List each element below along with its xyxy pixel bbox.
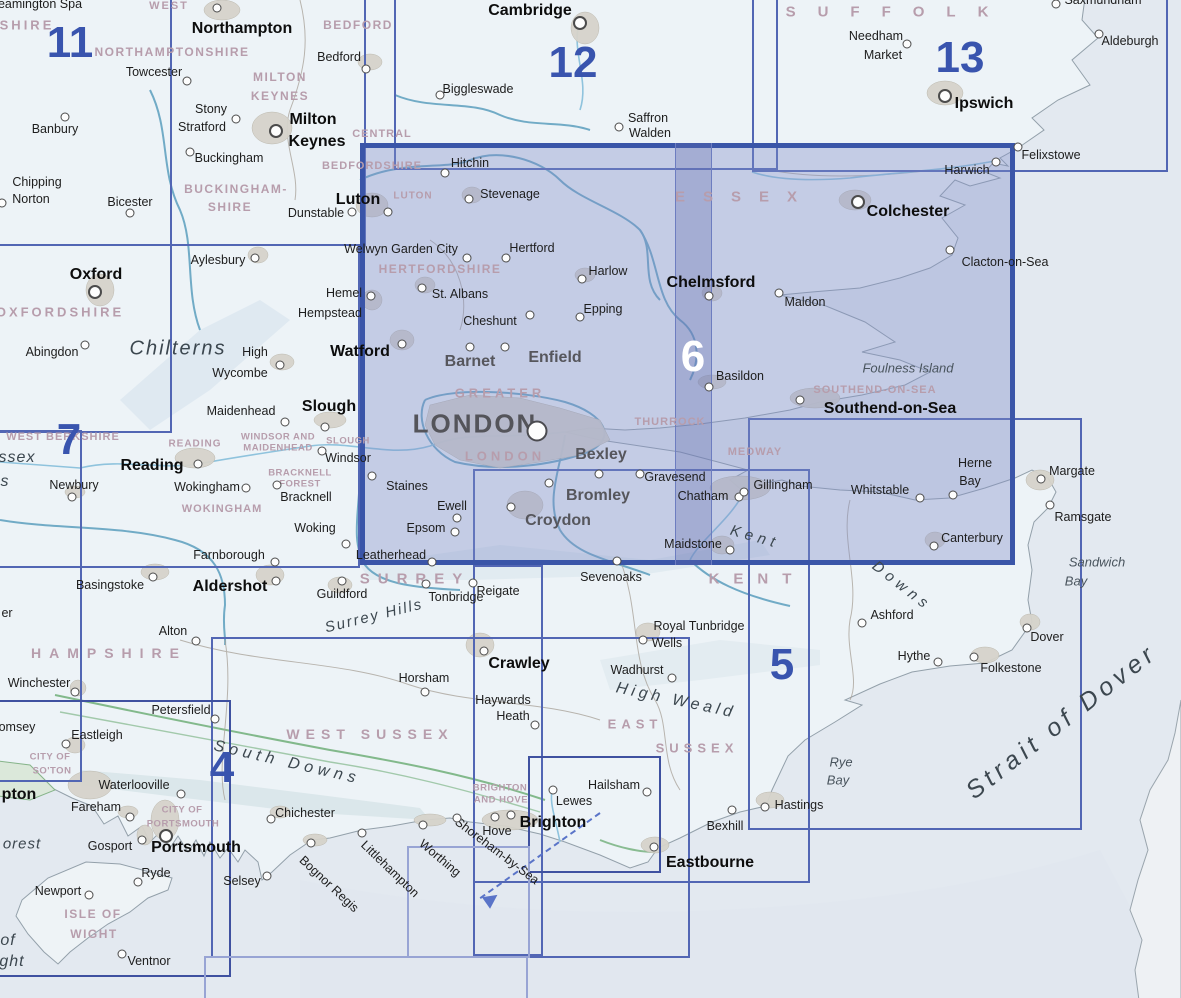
- city-label: Ipswich: [955, 95, 1014, 113]
- city-label: Gillingham: [753, 478, 812, 492]
- city-label: Biggleswade: [443, 82, 514, 96]
- city-dot: [705, 383, 714, 392]
- city-dot: [68, 493, 77, 502]
- city-label: Alton: [159, 624, 188, 638]
- city-label: Hitchin: [451, 156, 489, 170]
- city-label: Tonbridge: [429, 590, 484, 604]
- city-label: St. Albans: [432, 287, 488, 301]
- city-label: er: [1, 606, 12, 620]
- city-dot: [531, 721, 540, 730]
- sheet-number-7: 7: [57, 415, 81, 465]
- county-label: MEDWAY: [728, 446, 783, 458]
- city-dot: [934, 658, 943, 667]
- city-label: Herne: [958, 456, 992, 470]
- city-dot: [126, 813, 135, 822]
- city-label: Farnborough: [193, 548, 265, 562]
- county-label: LUTON: [393, 191, 432, 202]
- city-label: Keynes: [289, 133, 346, 151]
- city-label: Bay: [959, 474, 981, 488]
- city-label: eamington Spa: [0, 0, 82, 11]
- city-dot: [384, 208, 393, 217]
- city-dot: [251, 254, 260, 263]
- city-dot: [61, 113, 70, 122]
- city-label: Wadhurst: [610, 663, 663, 677]
- county-label: LONDON: [465, 449, 545, 464]
- county-label: CENTRAL: [352, 128, 412, 140]
- county-label: ISLE OF: [64, 907, 121, 921]
- city-dot: [418, 284, 427, 293]
- county-label: KENT: [709, 571, 806, 588]
- city-dot: [211, 715, 220, 724]
- city-label: Ventnor: [127, 954, 170, 968]
- county-label: WOKINGHAM: [182, 503, 263, 515]
- city-dot: [307, 839, 316, 848]
- city-dot: [338, 577, 347, 586]
- county-label: HAMPSHIRE: [31, 645, 187, 661]
- city-dot: [527, 421, 548, 442]
- city-dot: [1023, 624, 1032, 633]
- city-label: Eastleigh: [71, 728, 122, 742]
- city-label: Needham: [849, 29, 903, 43]
- city-label: Bexley: [575, 446, 627, 464]
- county-label: GREATER: [455, 386, 546, 401]
- city-label: Petersfield: [151, 703, 210, 717]
- city-label: Sevenoaks: [580, 570, 642, 584]
- county-label: OXFORDSHIRE: [0, 305, 124, 320]
- city-dot: [469, 579, 478, 588]
- area-label: Chilterns: [130, 338, 227, 361]
- city-label: Slough: [302, 398, 356, 416]
- city-dot: [545, 479, 554, 488]
- city-dot: [930, 542, 939, 551]
- city-label: Harwich: [944, 163, 989, 177]
- city-label: Horsham: [399, 671, 450, 685]
- city-dot: [946, 246, 955, 255]
- city-label: LONDON: [413, 409, 538, 440]
- city-label: Maidstone: [664, 537, 722, 551]
- area-label: orest: [3, 836, 41, 853]
- city-label: Selsey: [223, 874, 261, 888]
- city-label: Bicester: [107, 195, 152, 209]
- city-label: Hailsham: [588, 778, 640, 792]
- city-dot: [491, 813, 500, 822]
- county-label: SUFFOLK: [786, 4, 1011, 21]
- city-dot: [851, 195, 865, 209]
- city-dot: [650, 843, 659, 852]
- city-dot: [1046, 501, 1055, 510]
- city-label: Bromley: [566, 487, 630, 505]
- city-label: Woking: [294, 521, 335, 535]
- city-label: Wycombe: [212, 366, 267, 380]
- city-label: Hempstead: [298, 306, 362, 320]
- county-label: BRACKNELL: [268, 468, 332, 479]
- city-label: Dover: [1030, 630, 1063, 644]
- city-label: Ewell: [437, 499, 467, 513]
- city-dot: [177, 790, 186, 799]
- county-label: BEDFORDSHIRE: [322, 160, 422, 172]
- sheet-number-13: 13: [936, 33, 985, 83]
- city-dot: [796, 396, 805, 405]
- city-label: Bexhill: [707, 819, 744, 833]
- county-label: BEDFORD: [323, 18, 393, 32]
- sea-label: Foulness Island: [862, 361, 953, 376]
- county-label: HERTFORDSHIRE: [379, 262, 502, 276]
- city-label: Crawley: [488, 655, 549, 673]
- county-label: FOREST: [279, 479, 321, 490]
- city-dot: [318, 447, 327, 456]
- city-label: Welwyn Garden City: [344, 242, 458, 256]
- city-label: Lewes: [556, 794, 592, 808]
- city-label: Maidenhead: [207, 404, 276, 418]
- city-dot: [85, 891, 94, 900]
- city-dot: [578, 275, 587, 284]
- city-dot: [466, 343, 475, 352]
- area-label: s: [1, 473, 10, 491]
- city-dot: [81, 341, 90, 350]
- county-label: CITY OF: [30, 752, 71, 763]
- city-label: Chichester: [275, 806, 335, 820]
- city-label: Guildford: [317, 587, 368, 601]
- city-dot: [272, 577, 281, 586]
- area-label: of: [0, 932, 15, 950]
- city-label: Bedford: [317, 50, 361, 64]
- city-dot: [502, 254, 511, 263]
- city-dot: [639, 636, 648, 645]
- city-dot: [1095, 30, 1104, 39]
- city-dot: [668, 674, 677, 683]
- county-label: SUSSEX: [656, 741, 739, 756]
- city-dot: [480, 647, 489, 656]
- city-label: Epping: [584, 302, 623, 316]
- city-label: Royal Tunbridge: [653, 619, 744, 633]
- city-dot: [549, 786, 558, 795]
- city-dot: [118, 950, 127, 959]
- county-label: PORTSMOUTH: [147, 819, 220, 830]
- city-label: Hastings: [775, 798, 824, 812]
- city-label: Aldeburgh: [1102, 34, 1159, 48]
- city-label: Hertford: [509, 241, 554, 255]
- city-label: Wokingham: [174, 480, 240, 494]
- city-label: Colchester: [867, 203, 950, 221]
- city-dot: [134, 878, 143, 887]
- county-label: READING: [168, 439, 221, 450]
- city-label: Brighton: [520, 814, 587, 832]
- city-dot: [192, 637, 201, 646]
- city-label: Ryde: [141, 866, 170, 880]
- city-dot: [422, 580, 431, 589]
- city-label: Folkestone: [980, 661, 1041, 675]
- city-label: Towcester: [126, 65, 182, 79]
- city-dot: [465, 195, 474, 204]
- city-label: High: [242, 345, 268, 359]
- city-label: Whitstable: [851, 483, 909, 497]
- city-dot: [573, 16, 587, 30]
- city-dot: [1052, 0, 1061, 9]
- city-dot: [269, 124, 283, 138]
- city-label: Ashford: [870, 608, 913, 622]
- city-dot: [441, 169, 450, 178]
- city-dot: [916, 494, 925, 503]
- city-dot: [501, 343, 510, 352]
- city-label: Abingdon: [26, 345, 79, 359]
- city-dot: [1037, 475, 1046, 484]
- city-label: Winchester: [8, 676, 71, 690]
- county-label: WIGHT: [70, 927, 118, 941]
- city-dot: [636, 470, 645, 479]
- county-label: ESSEX: [675, 189, 815, 206]
- county-label: SURREY: [360, 571, 471, 588]
- city-dot: [428, 558, 437, 567]
- county-label: AND HOVE: [474, 795, 528, 806]
- city-label: Chelmsford: [667, 274, 756, 292]
- city-dot: [463, 254, 472, 263]
- city-dot: [903, 40, 912, 49]
- city-label: Enfield: [528, 349, 581, 367]
- county-label: MAIDENHEAD: [243, 443, 312, 454]
- county-label: SLOUGH: [326, 436, 370, 447]
- city-dot: [271, 558, 280, 567]
- county-label: BRIGHTON: [473, 783, 528, 794]
- sheet-number-4: 4: [210, 743, 234, 793]
- city-label: Margate: [1049, 464, 1095, 478]
- city-label: Stony: [195, 102, 227, 116]
- city-label: Chatham: [678, 489, 729, 503]
- city-dot: [183, 77, 192, 86]
- city-dot: [615, 123, 624, 132]
- city-dot: [267, 815, 276, 824]
- city-label: Wells: [652, 636, 682, 650]
- sea-label: Rye: [829, 755, 852, 770]
- city-label: Newbury: [49, 478, 98, 492]
- city-label: Stevenage: [480, 187, 540, 201]
- city-dot: [761, 803, 770, 812]
- city-dot: [1014, 143, 1023, 152]
- city-dot: [273, 481, 282, 490]
- city-label: Basildon: [716, 369, 764, 383]
- county-label: WEST SUSSEX: [286, 726, 453, 742]
- city-dot: [643, 788, 652, 797]
- sheet-number-5: 5: [770, 640, 794, 690]
- sea-label: Sandwich: [1069, 555, 1125, 570]
- city-label: Fareham: [71, 800, 121, 814]
- city-dot: [321, 423, 330, 432]
- city-label: Buckingham: [195, 151, 264, 165]
- city-dot: [88, 285, 102, 299]
- city-label: Milton: [289, 111, 336, 129]
- city-dot: [276, 361, 285, 370]
- county-label: WINDSOR AND: [241, 432, 315, 443]
- city-label: Cambridge: [488, 2, 572, 20]
- city-dot: [726, 546, 735, 555]
- city-dot: [858, 619, 867, 628]
- city-label: omsey: [0, 720, 35, 734]
- city-dot: [507, 811, 516, 820]
- city-label: Banbury: [32, 122, 79, 136]
- city-dot: [367, 292, 376, 301]
- city-label: Stratford: [178, 120, 226, 134]
- city-dot: [451, 528, 460, 537]
- city-dot: [342, 540, 351, 549]
- city-label: Reading: [120, 457, 183, 475]
- city-dot: [595, 470, 604, 479]
- city-label: pton: [2, 786, 37, 804]
- city-label: Newport: [35, 884, 82, 898]
- city-label: Eastbourne: [666, 854, 754, 872]
- city-label: Haywards: [475, 693, 531, 707]
- city-dot: [419, 821, 428, 830]
- city-label: Market: [864, 48, 902, 62]
- city-dot: [992, 158, 1001, 167]
- city-label: Leatherhead: [356, 548, 426, 562]
- city-label: Cheshunt: [463, 314, 517, 328]
- city-label: Northampton: [192, 20, 292, 38]
- city-dot: [436, 91, 445, 100]
- county-label: SOUTHEND-ON-SEA: [813, 384, 936, 396]
- city-dot: [970, 653, 979, 662]
- county-label: WEST: [149, 0, 189, 12]
- county-label: MILTON: [253, 70, 307, 84]
- city-label: Waterlooville: [98, 778, 169, 792]
- sheet-number-12: 12: [549, 38, 598, 88]
- city-label: Windsor: [325, 451, 371, 465]
- city-dot: [740, 488, 749, 497]
- city-label: Barnet: [445, 353, 496, 371]
- sea-label: Bay: [827, 773, 849, 788]
- city-label: Hove: [482, 824, 511, 838]
- city-label: Heath: [496, 709, 529, 723]
- city-label: Norton: [12, 192, 50, 206]
- city-label: Maldon: [785, 295, 826, 309]
- city-dot: [507, 503, 516, 512]
- city-label: Aylesbury: [191, 253, 246, 267]
- city-label: Ramsgate: [1055, 510, 1112, 524]
- city-label: Saffron: [628, 111, 668, 125]
- county-label: SHIRE: [208, 200, 252, 214]
- city-label: Aldershot: [193, 578, 268, 596]
- area-label: ght: [0, 953, 25, 971]
- city-dot: [194, 460, 203, 469]
- county-label: CITY OF: [162, 805, 203, 816]
- city-label: Gosport: [88, 839, 132, 853]
- sheet-box-channel[interactable]: [204, 956, 528, 998]
- map-canvas: SHIREWESTNORTHAMPTONSHIREMILTONKEYNESBED…: [0, 0, 1181, 998]
- city-dot: [775, 289, 784, 298]
- sea-label: Bay: [1065, 574, 1087, 589]
- city-label: Oxford: [70, 266, 122, 284]
- sheet-number-11: 11: [47, 18, 94, 68]
- city-label: Hemel: [326, 286, 362, 300]
- city-dot: [138, 836, 147, 845]
- county-label: EAST: [608, 717, 663, 732]
- city-dot: [159, 829, 173, 843]
- city-dot: [421, 688, 430, 697]
- city-label: Watford: [330, 343, 390, 361]
- city-dot: [71, 688, 80, 697]
- city-label: Epsom: [407, 521, 446, 535]
- city-label: Chipping: [12, 175, 61, 189]
- city-label: Saxmundham: [1064, 0, 1141, 7]
- city-label: Croydon: [525, 512, 591, 530]
- county-label: THURROCK: [635, 416, 706, 428]
- city-dot: [362, 65, 371, 74]
- city-dot: [453, 514, 462, 523]
- county-label: NORTHAMPTONSHIRE: [94, 45, 249, 59]
- area-label: ssex: [0, 449, 35, 467]
- city-dot: [398, 340, 407, 349]
- city-dot: [949, 491, 958, 500]
- city-dot: [613, 557, 622, 566]
- county-label: BUCKINGHAM-: [184, 182, 288, 196]
- city-label: Luton: [336, 191, 380, 209]
- city-label: Bracknell: [280, 490, 331, 504]
- city-dot: [186, 148, 195, 157]
- city-dot: [213, 4, 222, 13]
- city-label: Walden: [629, 126, 671, 140]
- city-label: Southend-on-Sea: [824, 400, 956, 418]
- city-dot: [938, 89, 952, 103]
- city-label: Hythe: [898, 649, 931, 663]
- city-label: Gravesend: [644, 470, 705, 484]
- city-dot: [576, 313, 585, 322]
- city-dot: [126, 209, 135, 218]
- city-dot: [149, 573, 158, 582]
- city-dot: [281, 418, 290, 427]
- city-dot: [728, 806, 737, 815]
- city-dot: [62, 740, 71, 749]
- city-label: Felixstowe: [1021, 148, 1080, 162]
- city-dot: [526, 311, 535, 320]
- county-label: KEYNES: [251, 89, 309, 103]
- city-label: Basingstoke: [76, 578, 144, 592]
- city-dot: [705, 292, 714, 301]
- county-label: SO'TON: [33, 766, 72, 777]
- city-dot: [263, 872, 272, 881]
- city-dot: [242, 484, 251, 493]
- city-label: Clacton-on-Sea: [962, 255, 1049, 269]
- city-dot: [368, 472, 377, 481]
- sheet-number-6: 6: [681, 332, 705, 382]
- city-dot: [453, 814, 462, 823]
- city-dot: [358, 829, 367, 838]
- city-label: Canterbury: [941, 531, 1003, 545]
- city-label: Harlow: [589, 264, 628, 278]
- city-label: Staines: [386, 479, 428, 493]
- city-dot: [232, 115, 241, 124]
